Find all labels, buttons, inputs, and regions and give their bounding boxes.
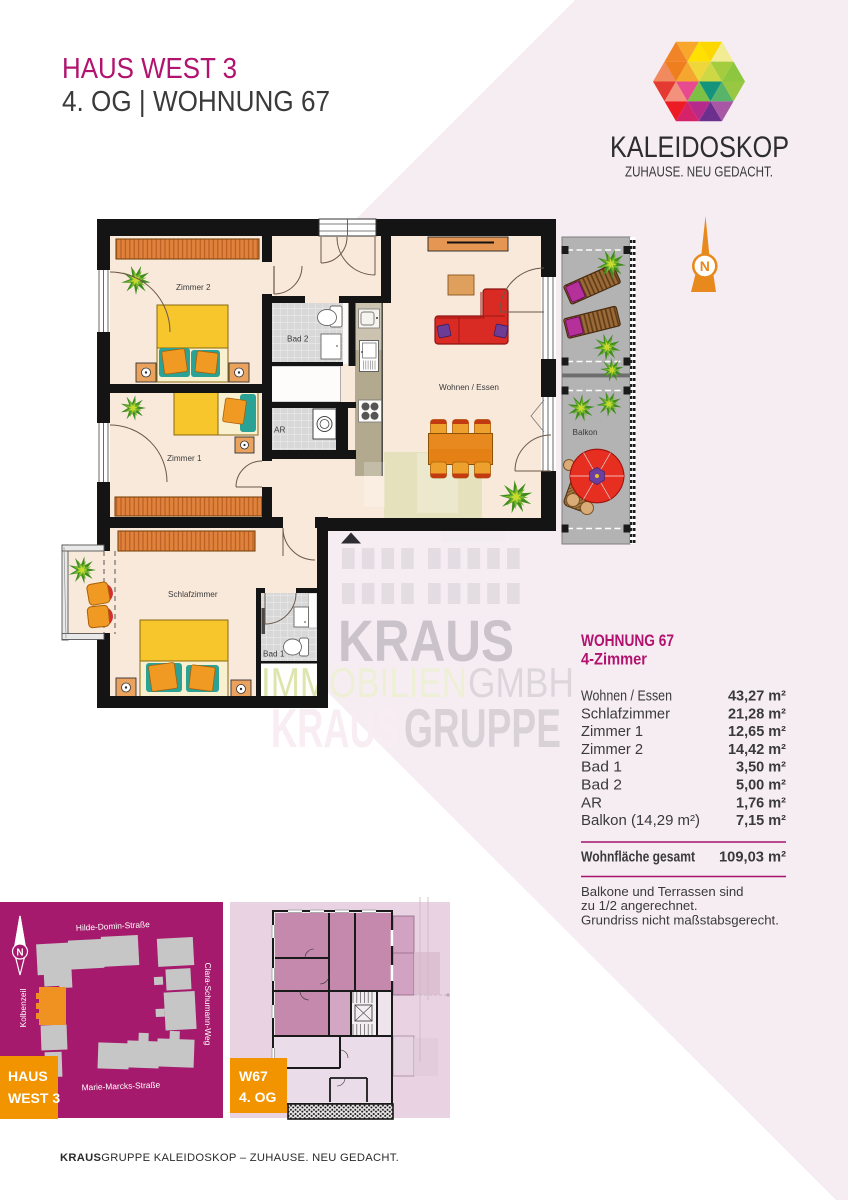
svg-text:4-Zimmer: 4-Zimmer <box>581 651 648 669</box>
svg-text:4. OG | WOHNUNG 67: 4. OG | WOHNUNG 67 <box>62 86 330 118</box>
svg-text:Grundriss nicht maßstabsgerech: Grundriss nicht maßstabsgerecht. <box>581 913 779 928</box>
svg-text:KRAUSGRUPPE KALEIDOSKOP – ZUH: KRAUSGRUPPE KALEIDOSKOP – ZUHAUSE. NEU G… <box>60 1152 399 1164</box>
svg-text:Zimmer 2: Zimmer 2 <box>581 742 643 758</box>
svg-text:HAUS: HAUS <box>8 1068 48 1084</box>
svg-text:KALEIDOSKOP: KALEIDOSKOP <box>610 131 789 164</box>
svg-text:WOHNUNG 67: WOHNUNG 67 <box>581 632 674 650</box>
svg-text:109,03 m²: 109,03 m² <box>719 849 786 866</box>
svg-text:Schlafzimmer: Schlafzimmer <box>168 590 218 599</box>
svg-text:AR: AR <box>274 426 285 435</box>
svg-text:14,42 m²: 14,42 m² <box>728 742 786 758</box>
svg-text:12,65 m²: 12,65 m² <box>728 724 786 740</box>
svg-text:N: N <box>700 258 710 274</box>
svg-text:Wohnen / Essen: Wohnen / Essen <box>439 383 499 392</box>
svg-text:AR: AR <box>581 795 602 811</box>
svg-text:GRUPPE: GRUPPE <box>404 697 561 759</box>
svg-text:1,76 m²: 1,76 m² <box>736 795 786 811</box>
svg-text:Wohnfläche gesamt: Wohnfläche gesamt <box>581 849 695 866</box>
svg-text:N: N <box>16 948 23 959</box>
svg-text:Kolbenzeil: Kolbenzeil <box>18 989 28 1028</box>
svg-text:Bad 1: Bad 1 <box>581 760 622 776</box>
svg-text:Schlafzimmer: Schlafzimmer <box>581 706 670 722</box>
svg-text:7,15 m²: 7,15 m² <box>736 813 786 829</box>
svg-text:Zimmer 2: Zimmer 2 <box>176 283 211 292</box>
svg-text:Wohnen / Essen: Wohnen / Essen <box>581 689 672 705</box>
svg-text:43,27 m²: 43,27 m² <box>728 689 786 705</box>
svg-text:Balkone und Terrassen sind: Balkone und Terrassen sind <box>581 884 744 899</box>
svg-text:Clara-Schumann-Weg: Clara-Schumann-Weg <box>203 963 213 1046</box>
svg-text:4. OG: 4. OG <box>239 1089 276 1105</box>
svg-text:ZUHAUSE. NEU GEDACHT.: ZUHAUSE. NEU GEDACHT. <box>625 165 773 181</box>
svg-text:3,50 m²: 3,50 m² <box>736 760 786 776</box>
svg-text:Zimmer 1: Zimmer 1 <box>581 724 643 740</box>
svg-text:W67: W67 <box>239 1068 268 1084</box>
svg-text:Zimmer 1: Zimmer 1 <box>167 454 202 463</box>
svg-text:Balkon: Balkon <box>573 428 598 437</box>
svg-text:21,28 m²: 21,28 m² <box>728 706 786 722</box>
svg-text:WEST 3: WEST 3 <box>8 1090 60 1106</box>
svg-text:zu 1/2 angerechnet.: zu 1/2 angerechnet. <box>581 898 698 913</box>
svg-text:5,00 m²: 5,00 m² <box>736 778 786 794</box>
svg-text:Bad 1: Bad 1 <box>263 650 285 659</box>
svg-text:Bad 2: Bad 2 <box>287 335 309 344</box>
svg-text:HAUS WEST 3: HAUS WEST 3 <box>62 53 237 85</box>
svg-text:Bad 2: Bad 2 <box>581 778 622 794</box>
svg-text:Balkon (14,29 m²): Balkon (14,29 m²) <box>581 813 700 829</box>
